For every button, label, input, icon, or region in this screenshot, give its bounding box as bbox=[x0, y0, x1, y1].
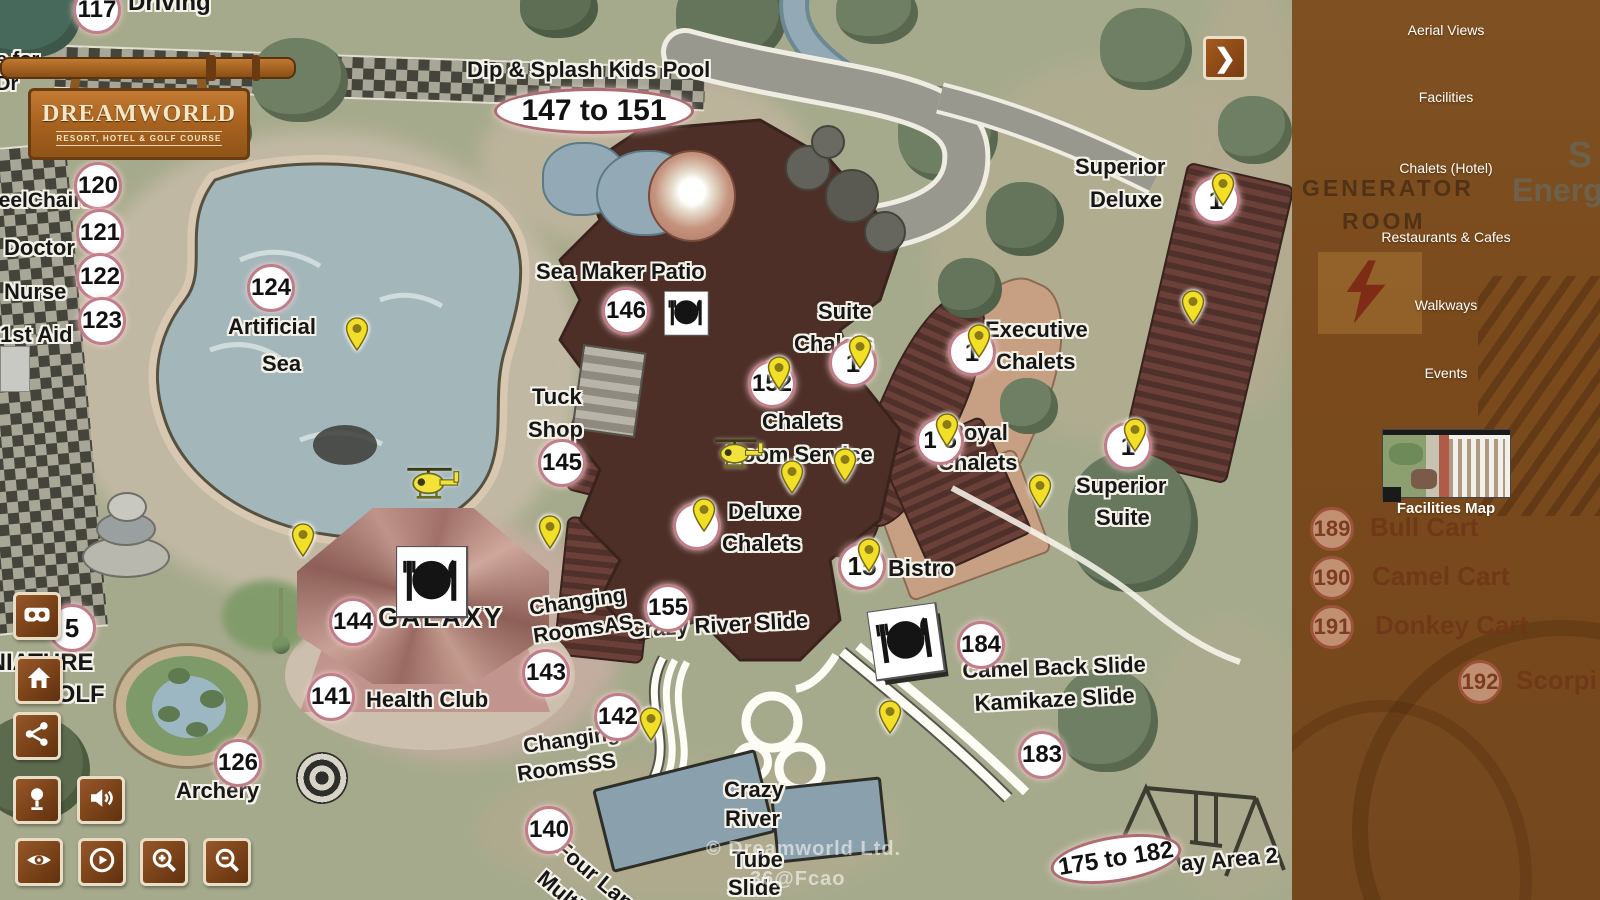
sidebar-item-facilities[interactable]: Facilities bbox=[1292, 89, 1600, 105]
map-marker-140[interactable]: 140 bbox=[525, 806, 573, 854]
facilities-map-thumbnail[interactable] bbox=[1383, 430, 1510, 497]
marker-number: 121 bbox=[80, 219, 120, 247]
map-pin-icon[interactable] bbox=[780, 460, 804, 494]
map-label: Deluxe bbox=[1090, 188, 1162, 211]
map-marker-183[interactable]: 183 bbox=[1018, 731, 1066, 779]
map-label: Suite bbox=[1096, 506, 1150, 529]
map-pin-icon[interactable] bbox=[1181, 290, 1205, 324]
marker-number: 145 bbox=[542, 449, 582, 477]
marker-number: 120 bbox=[78, 172, 118, 200]
map-label-scorpi: Scorpi bbox=[1516, 665, 1597, 696]
thumb-detail bbox=[1449, 439, 1505, 497]
map-pin-icon[interactable] bbox=[1123, 418, 1147, 452]
mini-golf-bush bbox=[168, 668, 190, 684]
map-label: Sea Maker Patio bbox=[536, 260, 705, 283]
map-label: Suite bbox=[818, 300, 872, 323]
marker-number: 123 bbox=[82, 307, 122, 335]
sign-subtitle: RESORT, HOTEL & GOLF COURSE bbox=[56, 131, 221, 146]
map-marker-155[interactable]: 155 bbox=[644, 584, 692, 632]
marker-number: 155 bbox=[648, 594, 688, 622]
sidebar-toggle-button[interactable]: ❯ bbox=[1203, 36, 1247, 80]
marker-number: 126 bbox=[218, 749, 258, 777]
map-pin-icon[interactable] bbox=[878, 700, 902, 734]
marker-number: 183 bbox=[1022, 741, 1062, 769]
map-pin-icon[interactable] bbox=[857, 538, 881, 572]
map-marker-145[interactable]: 145 bbox=[538, 439, 586, 487]
restaurant-icon[interactable] bbox=[396, 546, 476, 631]
sign-pole-ring bbox=[206, 55, 216, 81]
map-label-donkey-cart: Donkey Cart bbox=[1375, 610, 1528, 641]
sidebar-item-aerial-views[interactable]: Aerial Views bbox=[1292, 22, 1600, 38]
map-pin-icon[interactable] bbox=[291, 523, 315, 557]
resort-map-app: DREAMWORLD RESORT, HOTEL & GOLF COURSE D… bbox=[0, 0, 1600, 900]
mini-golf-bush bbox=[186, 722, 208, 737]
vr-icon bbox=[22, 599, 52, 634]
map-pin-icon[interactable] bbox=[538, 515, 562, 549]
map-pin-icon[interactable] bbox=[967, 324, 991, 358]
map-label: Dip & Splash Kids Pool bbox=[467, 58, 710, 81]
round-pool bbox=[648, 150, 736, 242]
map-label: Health Club bbox=[366, 688, 488, 711]
map-label: Driving bbox=[128, 0, 211, 15]
marker-number: 142 bbox=[598, 703, 638, 731]
map-label: Tuck bbox=[532, 385, 582, 408]
map-label: Superior bbox=[1075, 155, 1165, 178]
marker-number: 143 bbox=[526, 659, 566, 687]
map-range-badge[interactable]: 147 to 151 bbox=[494, 88, 694, 134]
restaurant-icon[interactable] bbox=[867, 601, 956, 694]
map-pin-icon[interactable] bbox=[767, 356, 791, 390]
watermark-line1: © Dreamworld Ltd. bbox=[706, 838, 901, 861]
sidebar-item-facilities-map-label[interactable]: Facilities Map bbox=[1292, 500, 1600, 517]
map-marker-184[interactable]: 184 bbox=[957, 621, 1005, 669]
map-label-camel-cart: Camel Cart bbox=[1372, 561, 1509, 592]
map-marker-124[interactable]: 124 bbox=[247, 264, 295, 312]
generator-room-label: GENERATOR bbox=[1302, 175, 1474, 202]
map-label: Deluxe bbox=[728, 500, 800, 523]
map-marker-123[interactable]: 123 bbox=[78, 297, 126, 345]
map-pin-icon[interactable] bbox=[833, 448, 857, 482]
sidebar-item-chalets-hotel[interactable]: Chalets (Hotel) bbox=[1292, 160, 1600, 176]
map-label: Superior bbox=[1076, 474, 1166, 497]
tour-button[interactable] bbox=[78, 838, 126, 886]
map-marker-122[interactable]: 122 bbox=[76, 253, 124, 301]
share-button[interactable] bbox=[13, 712, 61, 760]
zoom-out-icon bbox=[212, 845, 242, 880]
volume-button[interactable] bbox=[77, 776, 125, 824]
marker-number: 146 bbox=[606, 297, 646, 325]
play-circle-icon bbox=[87, 845, 117, 880]
map-marker-143[interactable]: 143 bbox=[522, 649, 570, 697]
mini-golf-bush bbox=[200, 690, 224, 708]
map-label: 1st Aid bbox=[0, 323, 73, 346]
sign-pole-ring bbox=[252, 55, 260, 81]
map-marker-121[interactable]: 121 bbox=[76, 209, 124, 257]
energy-label-fragment: Energ bbox=[1512, 172, 1600, 209]
eye-icon bbox=[24, 845, 54, 880]
sidebar-item-events[interactable]: Events bbox=[1292, 365, 1600, 381]
marker-number: 5 bbox=[65, 613, 79, 644]
map-marker-146[interactable]: 146 bbox=[602, 287, 650, 335]
mini-golf-bush bbox=[158, 706, 180, 722]
map-marker-191: 191 bbox=[1310, 605, 1354, 649]
map-marker-142[interactable]: 142 bbox=[594, 693, 642, 741]
map-marker-192: 192 bbox=[1458, 660, 1502, 704]
lightning-icon bbox=[1336, 258, 1396, 326]
zoom-in-icon bbox=[149, 845, 179, 880]
marker-number: 144 bbox=[333, 608, 373, 636]
dreamworld-sign: DREAMWORLD RESORT, HOTEL & GOLF COURSE bbox=[28, 88, 250, 160]
map-marker-141[interactable]: 141 bbox=[307, 673, 355, 721]
map-pin-icon[interactable] bbox=[1028, 474, 1052, 508]
sidebar-item-restaurants-cafes[interactable]: Restaurants & Cafes bbox=[1292, 229, 1600, 245]
restaurant-icon[interactable] bbox=[664, 291, 714, 346]
map-marker-120[interactable]: 120 bbox=[74, 162, 122, 210]
map-pin-icon[interactable] bbox=[639, 707, 663, 741]
volume-icon bbox=[86, 783, 116, 818]
sign-title: DREAMWORLD bbox=[42, 102, 236, 126]
home-icon bbox=[24, 663, 54, 698]
location-button[interactable] bbox=[13, 776, 61, 824]
thumb-detail bbox=[1389, 443, 1423, 465]
map-label: River bbox=[725, 807, 780, 830]
helicopter-icon bbox=[712, 432, 766, 476]
map-pin-icon[interactable] bbox=[848, 335, 872, 369]
map-label: Doctor bbox=[4, 236, 75, 259]
location-icon bbox=[22, 783, 52, 818]
share-icon bbox=[22, 719, 52, 754]
map-label: Executive bbox=[985, 318, 1088, 341]
fountain bbox=[107, 492, 147, 522]
map-marker-126[interactable]: 126 bbox=[214, 739, 262, 787]
hut bbox=[0, 346, 30, 392]
map-label: Chalets bbox=[722, 532, 801, 555]
marker-number: 124 bbox=[251, 274, 291, 302]
map-marker-190: 190 bbox=[1310, 556, 1354, 600]
map-pin-icon[interactable] bbox=[1211, 172, 1235, 206]
zoom-out-button[interactable] bbox=[203, 838, 251, 886]
view-button[interactable] bbox=[15, 838, 63, 886]
home-button[interactable] bbox=[15, 656, 63, 704]
map-label: Crazy bbox=[724, 778, 784, 801]
marker-number: 184 bbox=[961, 631, 1001, 659]
marker-number: 141 bbox=[311, 683, 351, 711]
helicopter-icon bbox=[404, 460, 462, 507]
map-pin-icon[interactable] bbox=[935, 413, 959, 447]
marker-number: 122 bbox=[80, 263, 120, 291]
chevron-right-icon: ❯ bbox=[1214, 43, 1236, 74]
thumb-detail bbox=[1411, 469, 1437, 489]
map-pin-icon[interactable] bbox=[692, 498, 716, 532]
vr-view-button[interactable] bbox=[13, 592, 61, 640]
watermark-line2: 36@Fcao bbox=[750, 868, 845, 891]
zoom-in-button[interactable] bbox=[140, 838, 188, 886]
sidebar-panel: GENERATOR ROOM Energ S 189Bull Cart190Ca… bbox=[1292, 0, 1600, 900]
map-label: Nurse bbox=[4, 280, 66, 303]
range-badge-text: 147 to 151 bbox=[521, 94, 666, 128]
marker-number: 140 bbox=[529, 816, 569, 844]
map-label: Chalets bbox=[762, 410, 841, 433]
map-label: Artificial bbox=[228, 315, 316, 338]
map-marker-144[interactable]: 144 bbox=[329, 598, 377, 646]
map-label: Chalets bbox=[996, 350, 1075, 373]
sidebar-item-walkways[interactable]: Walkways bbox=[1292, 297, 1600, 313]
map-pin-icon[interactable] bbox=[345, 317, 369, 351]
map-label: Shop bbox=[528, 418, 583, 441]
map-label: Bistro bbox=[888, 556, 954, 580]
marker-number: 117 bbox=[78, 0, 117, 24]
map-label: Sea bbox=[262, 352, 301, 375]
